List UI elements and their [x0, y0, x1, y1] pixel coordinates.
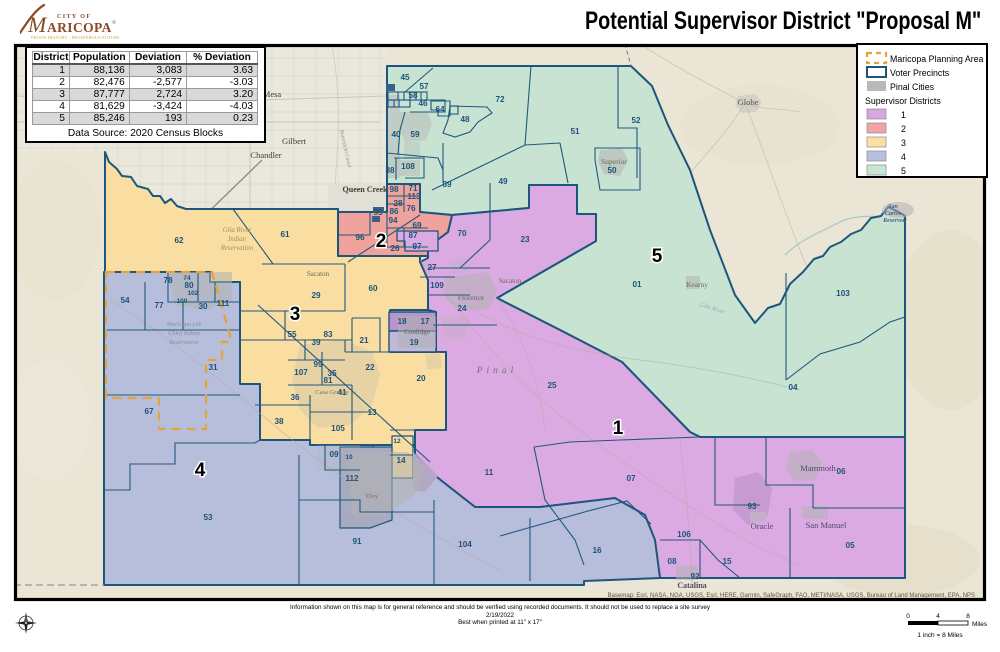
svg-text:106: 106	[677, 530, 691, 539]
svg-text:Pinal: Pinal	[476, 366, 518, 376]
svg-text:30: 30	[198, 302, 208, 311]
svg-text:22: 22	[365, 363, 375, 372]
svg-text:Chin) Indian: Chin) Indian	[168, 330, 200, 337]
svg-text:72: 72	[495, 95, 505, 104]
svg-text:19: 19	[409, 338, 419, 347]
svg-text:®: ®	[112, 19, 116, 26]
svg-text:61: 61	[280, 230, 290, 239]
svg-text:2: 2	[376, 231, 387, 252]
svg-text:89: 89	[442, 180, 452, 189]
svg-text:108: 108	[401, 162, 415, 171]
svg-text:46: 46	[418, 99, 428, 108]
svg-text:11: 11	[485, 468, 494, 477]
svg-text:14: 14	[396, 456, 406, 465]
svg-text:54: 54	[120, 296, 130, 305]
svg-text:31: 31	[208, 363, 218, 372]
svg-text:36: 36	[290, 393, 300, 402]
svg-text:70: 70	[457, 229, 467, 238]
svg-text:29: 29	[311, 291, 321, 300]
svg-text:52: 52	[631, 116, 641, 125]
svg-text:94: 94	[388, 216, 398, 225]
svg-text:Voter Precincts: Voter Precincts	[890, 68, 950, 78]
svg-text:59: 59	[410, 130, 420, 139]
svg-text:1: 1	[901, 110, 906, 120]
svg-text:27: 27	[427, 263, 437, 272]
svg-text:2: 2	[901, 124, 906, 134]
svg-text:Supervisor Districts: Supervisor Districts	[865, 96, 941, 106]
svg-text:76: 76	[406, 204, 416, 213]
svg-text:San Manuel: San Manuel	[806, 520, 847, 530]
svg-text:4: 4	[936, 613, 940, 620]
svg-text:12: 12	[393, 438, 401, 445]
svg-text:M: M	[27, 12, 48, 37]
svg-text:Pinal Cities: Pinal Cities	[890, 82, 935, 92]
svg-text:49: 49	[498, 177, 508, 186]
svg-text:21: 21	[359, 336, 369, 345]
svg-text:102: 102	[188, 290, 199, 297]
svg-text:57: 57	[419, 82, 429, 91]
svg-text:Indian: Indian	[227, 236, 246, 243]
svg-text:86: 86	[389, 207, 399, 216]
svg-text:15: 15	[722, 557, 732, 566]
svg-text:62: 62	[174, 236, 184, 245]
svg-text:Reservation: Reservation	[168, 339, 199, 346]
svg-text:1 inch = 8 Miles: 1 inch = 8 Miles	[917, 632, 963, 639]
svg-text:ARICOPA: ARICOPA	[47, 20, 112, 35]
svg-text:111: 111	[217, 299, 230, 308]
svg-text:87: 87	[408, 231, 418, 240]
svg-text:5: 5	[901, 166, 906, 176]
svg-text:53: 53	[203, 513, 213, 522]
svg-text:17: 17	[420, 317, 430, 326]
svg-text:77: 77	[154, 301, 164, 310]
svg-text:Maricopa Planning Area: Maricopa Planning Area	[890, 54, 984, 64]
svg-text:51: 51	[570, 127, 580, 136]
svg-text:Kearny: Kearny	[686, 280, 708, 289]
svg-text:05: 05	[845, 541, 855, 550]
svg-text:103: 103	[836, 289, 850, 298]
svg-text:93: 93	[747, 502, 757, 511]
svg-text:105: 105	[331, 424, 345, 433]
svg-text:Gila River: Gila River	[223, 227, 252, 234]
svg-text:13: 13	[367, 408, 377, 417]
svg-text:109: 109	[430, 281, 444, 290]
svg-text:99: 99	[313, 360, 323, 369]
svg-text:Chandler: Chandler	[250, 150, 281, 160]
svg-text:88: 88	[385, 166, 395, 175]
svg-text:50: 50	[607, 166, 617, 175]
svg-text:80: 80	[184, 281, 194, 290]
svg-text:Sacaton: Sacaton	[499, 277, 522, 285]
svg-text:Eloy: Eloy	[366, 493, 379, 500]
svg-text:1: 1	[613, 418, 624, 439]
svg-text:06: 06	[836, 467, 846, 476]
svg-text:20: 20	[416, 374, 426, 383]
svg-text:Catalina: Catalina	[677, 581, 706, 590]
svg-text:48: 48	[460, 115, 470, 124]
svg-text:107: 107	[294, 368, 308, 377]
svg-text:40: 40	[391, 130, 401, 139]
svg-text:Sacaton: Sacaton	[307, 270, 330, 278]
svg-text:Superior: Superior	[601, 157, 627, 166]
svg-text:78: 78	[163, 276, 173, 285]
svg-text:Florence: Florence	[458, 293, 485, 302]
svg-text:64: 64	[435, 105, 445, 114]
svg-text:Maricopa (Ak: Maricopa (Ak	[166, 321, 202, 328]
svg-text:10: 10	[345, 454, 353, 461]
svg-text:96: 96	[355, 233, 365, 242]
svg-text:91: 91	[352, 537, 362, 546]
svg-text:69: 69	[412, 221, 422, 230]
svg-text:95: 95	[373, 208, 383, 217]
svg-text:Queen Creek: Queen Creek	[343, 185, 389, 194]
svg-text:04: 04	[788, 383, 798, 392]
svg-text:07: 07	[626, 474, 636, 483]
svg-text:83: 83	[323, 330, 333, 339]
svg-text:San: San	[888, 204, 898, 210]
svg-text:67: 67	[144, 407, 154, 416]
svg-text:25: 25	[547, 381, 557, 390]
svg-text:38: 38	[274, 417, 284, 426]
svg-text:24: 24	[457, 304, 467, 313]
svg-text:Carlos: Carlos	[885, 211, 902, 217]
svg-text:4: 4	[195, 460, 206, 481]
svg-text:23: 23	[520, 235, 530, 244]
svg-text:55: 55	[287, 330, 297, 339]
svg-text:92: 92	[690, 572, 700, 581]
svg-text:26: 26	[390, 244, 400, 253]
svg-text:58: 58	[408, 91, 418, 100]
svg-text:Reservoir: Reservoir	[882, 218, 907, 224]
svg-text:Oracle: Oracle	[751, 521, 774, 531]
svg-text:97: 97	[412, 242, 422, 251]
svg-text:5: 5	[652, 246, 663, 267]
svg-text:104: 104	[458, 540, 472, 549]
svg-text:18: 18	[397, 317, 407, 326]
svg-text:8: 8	[966, 613, 970, 620]
svg-text:Mammoth: Mammoth	[800, 463, 836, 473]
svg-text:Globe: Globe	[738, 97, 759, 107]
svg-text:Reservation: Reservation	[220, 245, 254, 252]
svg-text:98: 98	[389, 185, 399, 194]
svg-text:Coolidge: Coolidge	[404, 328, 430, 336]
svg-text:4: 4	[901, 152, 906, 162]
svg-text:3: 3	[901, 138, 906, 148]
svg-text:PROUD HISTORY · PROSPEROUS FUT: PROUD HISTORY · PROSPEROUS FUTURE	[31, 35, 120, 40]
svg-text:112: 112	[345, 474, 359, 483]
svg-text:113: 113	[407, 192, 421, 201]
svg-text:08: 08	[667, 557, 677, 566]
svg-text:81: 81	[323, 376, 333, 385]
svg-text:39: 39	[311, 338, 321, 347]
svg-text:0: 0	[906, 613, 910, 620]
svg-text:3: 3	[290, 304, 301, 325]
svg-text:60: 60	[368, 284, 378, 293]
svg-text:09: 09	[329, 450, 339, 459]
svg-text:100: 100	[177, 298, 188, 305]
svg-text:Casa Grande: Casa Grande	[315, 389, 349, 396]
svg-text:45: 45	[400, 73, 410, 82]
svg-text:16: 16	[592, 546, 602, 555]
svg-text:Gilbert: Gilbert	[282, 136, 307, 146]
svg-text:01: 01	[632, 280, 642, 289]
svg-text:Miles: Miles	[972, 621, 988, 628]
